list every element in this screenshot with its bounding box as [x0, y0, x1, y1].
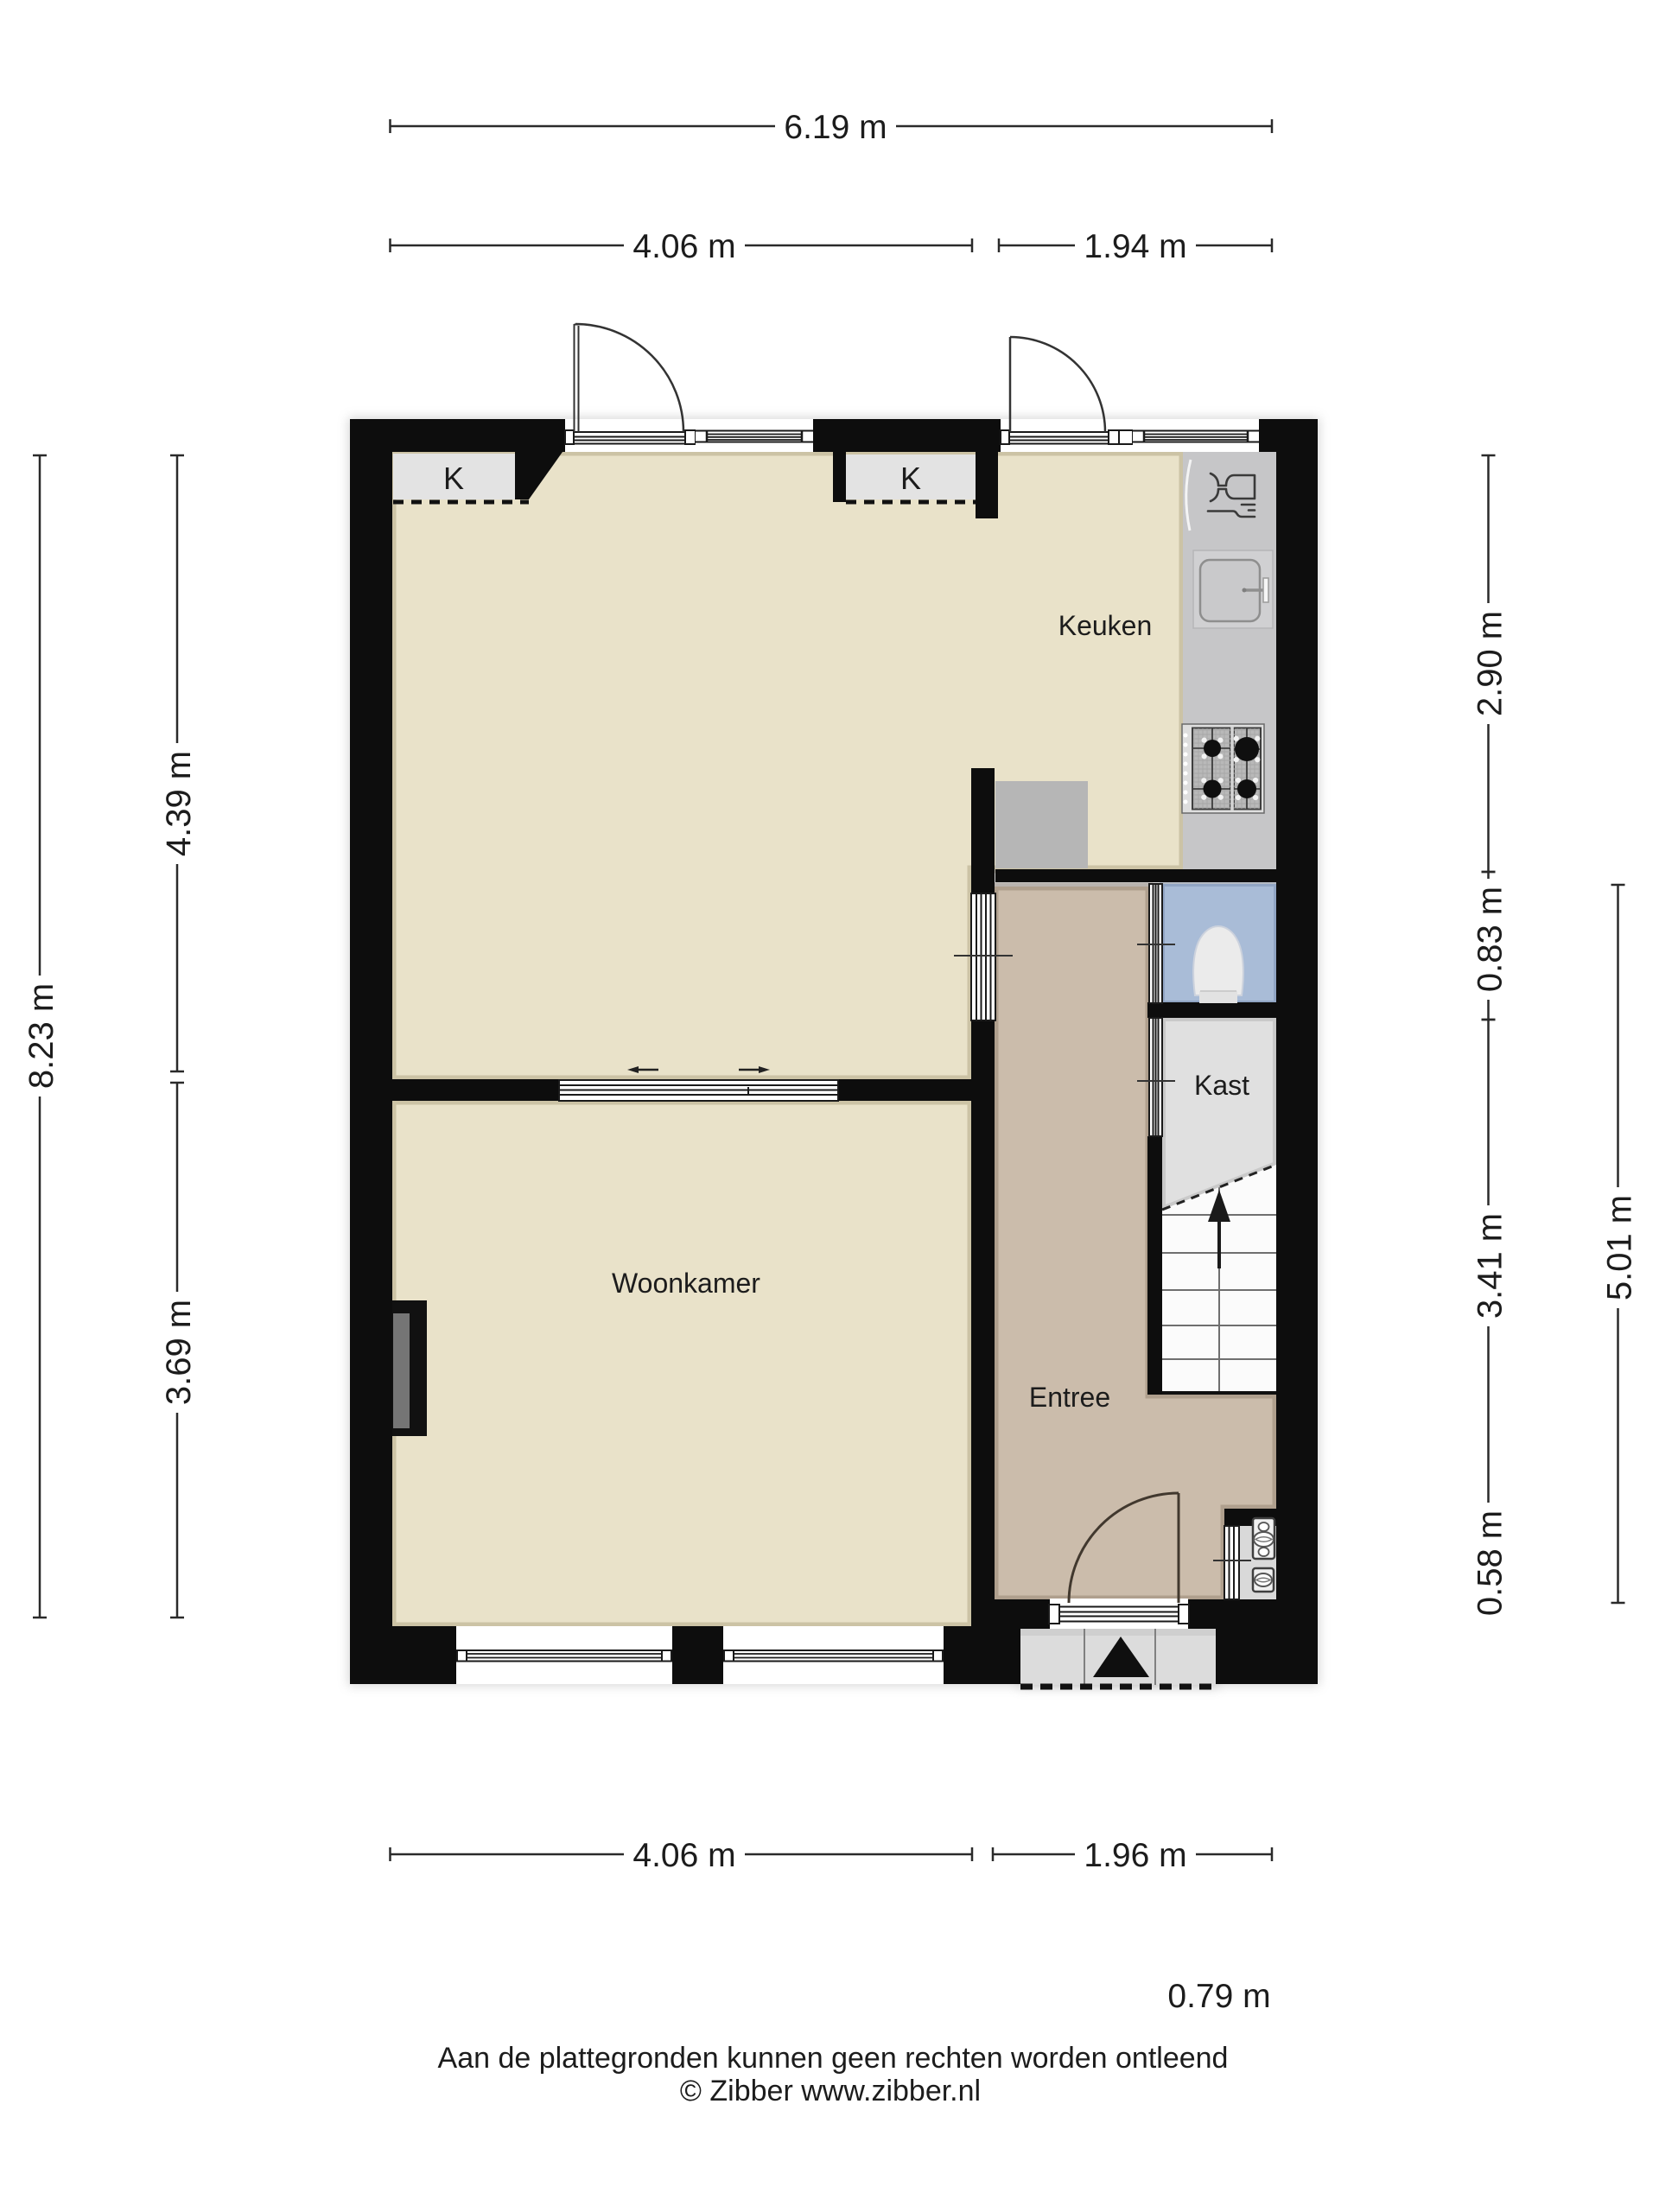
svg-text:Keuken: Keuken [1058, 610, 1153, 641]
svg-text:© Zibber www.zibber.nl: © Zibber www.zibber.nl [680, 2075, 981, 2107]
svg-text:0.79 m: 0.79 m [1167, 1978, 1270, 2015]
svg-text:0.58 m: 0.58 m [1471, 1510, 1510, 1616]
svg-text:4.06 m: 4.06 m [632, 228, 735, 265]
svg-text:K: K [443, 461, 464, 496]
svg-text:1.96 m: 1.96 m [1084, 1837, 1186, 1874]
svg-text:2.90 m: 2.90 m [1471, 611, 1510, 716]
svg-text:1.94 m: 1.94 m [1084, 228, 1186, 265]
svg-text:Kast: Kast [1194, 1070, 1249, 1101]
svg-text:6.19 m: 6.19 m [784, 109, 887, 146]
svg-text:Aan de plattegronden kunnen ge: Aan de plattegronden kunnen geen rechten… [438, 2042, 1229, 2075]
svg-text:K: K [900, 461, 921, 496]
svg-text:3.41 m: 3.41 m [1471, 1213, 1510, 1319]
svg-text:Woonkamer: Woonkamer [612, 1268, 760, 1299]
svg-text:4.39 m: 4.39 m [160, 751, 198, 856]
svg-text:8.23 m: 8.23 m [22, 983, 60, 1089]
svg-text:5.01 m: 5.01 m [1601, 1195, 1639, 1300]
svg-text:3.69 m: 3.69 m [160, 1300, 198, 1405]
svg-text:4.06 m: 4.06 m [632, 1837, 735, 1874]
svg-text:0.83 m: 0.83 m [1471, 887, 1510, 992]
svg-text:Entree: Entree [1029, 1382, 1110, 1413]
